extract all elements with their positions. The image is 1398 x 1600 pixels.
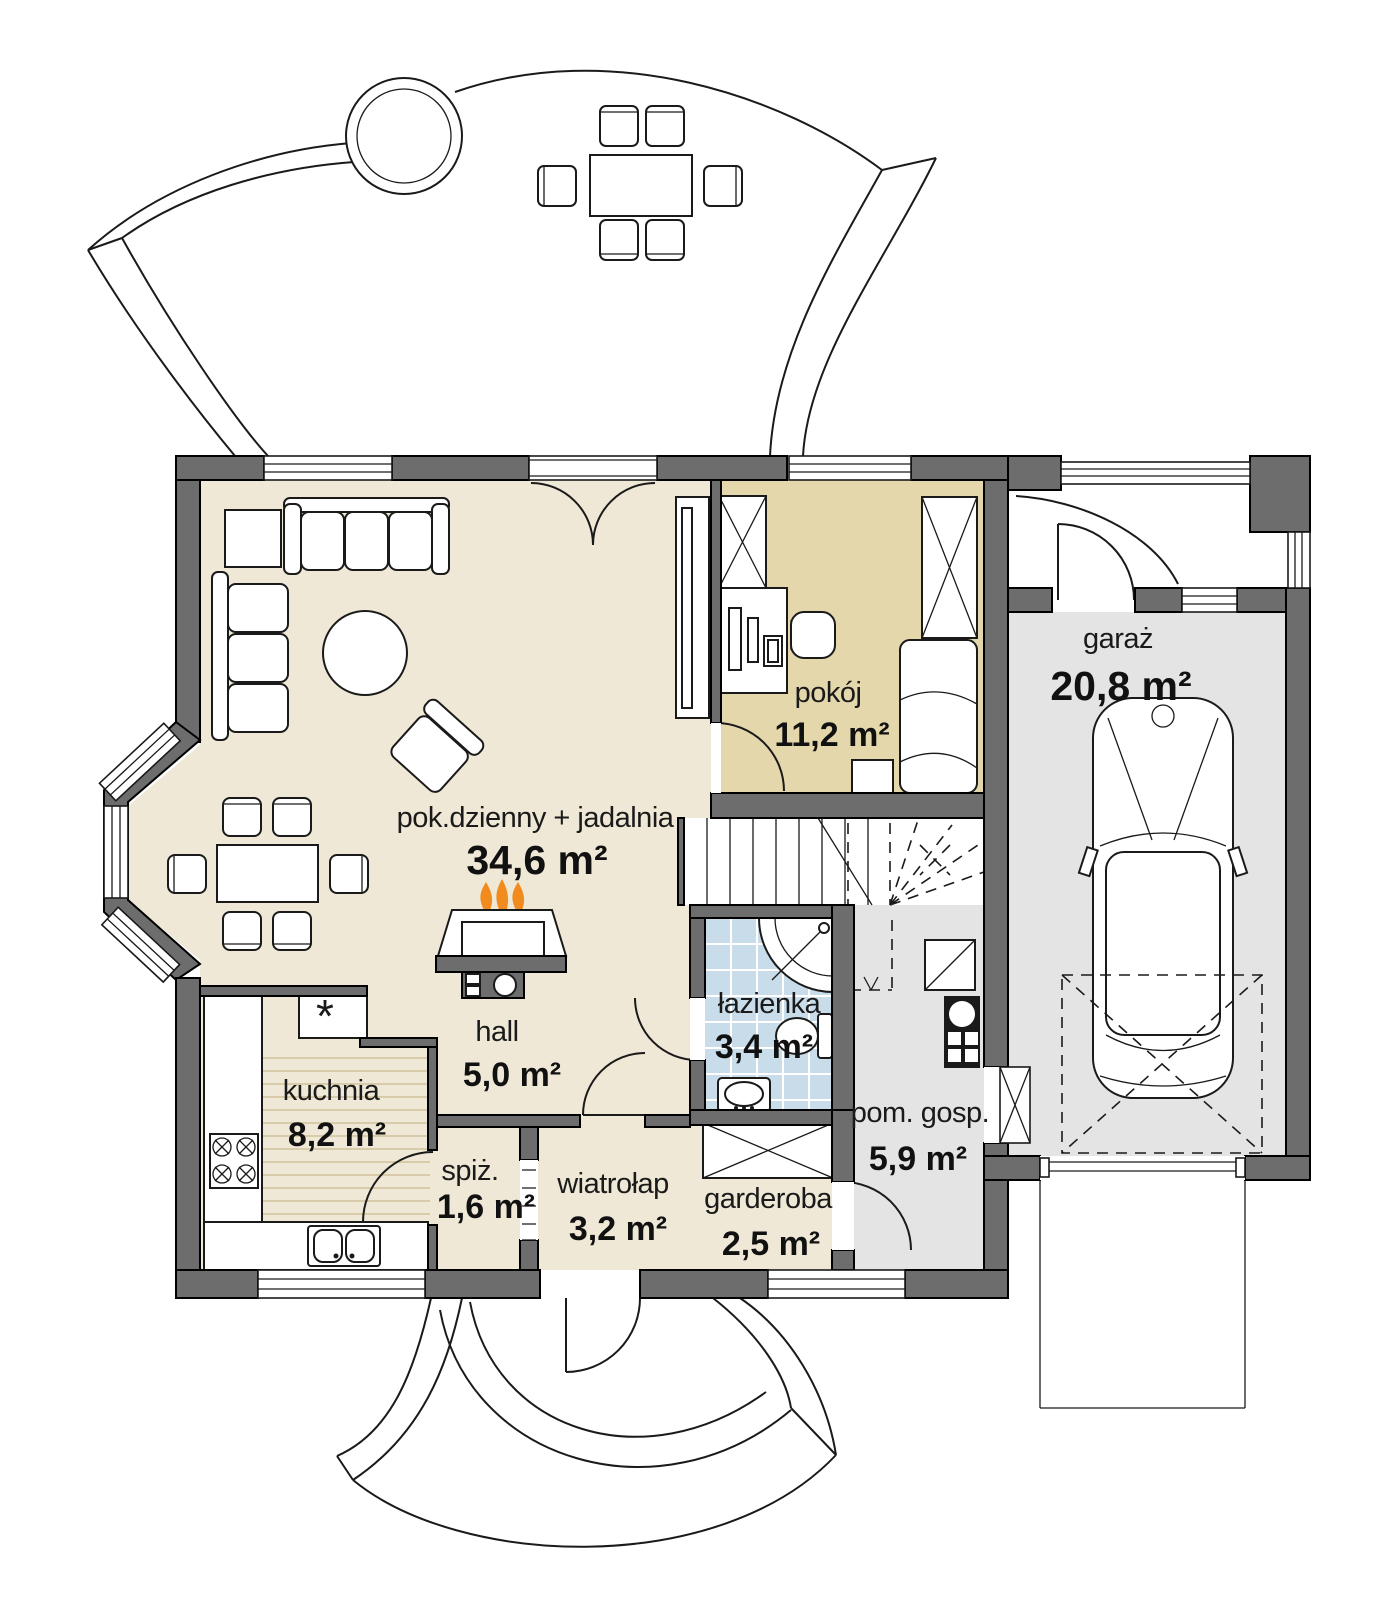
front-entrance-door — [566, 1298, 640, 1372]
porch-railing — [1061, 462, 1250, 484]
fireplace-flames-icon — [480, 879, 524, 912]
fridge-asterisk-icon: * — [316, 990, 334, 1042]
french-door-opening — [529, 456, 657, 480]
garderoba-wardrobe — [703, 1123, 833, 1178]
washbasin-icon — [718, 1078, 770, 1112]
sink-icon — [308, 1226, 380, 1266]
hall-label: hall — [475, 1016, 518, 1048]
desk-chair — [791, 612, 835, 658]
sofa-three-seat — [284, 498, 449, 574]
utility-area: 5,9 m² — [869, 1140, 967, 1178]
terrace-bottom — [337, 1298, 836, 1547]
vestibule-label: wiatrołap — [556, 1168, 669, 1200]
floor-plan: * — [0, 0, 1398, 1600]
porch-side-window — [1288, 532, 1310, 588]
living-room-label: pok.dzienny + jadalnia — [397, 802, 675, 834]
bed — [900, 640, 977, 793]
side-table — [225, 510, 281, 567]
kitchen-label: kuchnia — [283, 1075, 381, 1107]
bathroom-door-gap — [690, 998, 705, 1060]
window-bottom-garderoba — [768, 1270, 905, 1298]
hall-area: 5,0 m² — [463, 1056, 561, 1094]
boiler-icon — [944, 996, 980, 1068]
bathroom-label: łazienka — [718, 988, 822, 1020]
porch-garage-door — [1058, 524, 1134, 600]
porch-arc — [1016, 496, 1178, 584]
sofa-corner — [212, 572, 288, 740]
garage-area: 20,8 m² — [1050, 663, 1191, 709]
living-room-area: 34,6 m² — [466, 837, 607, 883]
pantry-area: 1,6 m² — [437, 1188, 535, 1226]
garderoba-door-gap — [832, 1182, 854, 1250]
tree-icon — [346, 78, 462, 194]
bathroom-area: 3,4 m² — [715, 1028, 813, 1066]
kitchen-area: 8,2 m² — [288, 1116, 386, 1154]
pantry-label: spiż. — [441, 1155, 498, 1187]
garage-door-leaf — [1000, 1067, 1030, 1143]
terrace-top — [88, 71, 936, 456]
window-top-left — [264, 456, 392, 480]
garage-label: garaż — [1083, 623, 1153, 655]
window-top-right — [789, 456, 911, 480]
driveway — [1040, 1180, 1245, 1408]
bay-window-left — [104, 806, 128, 898]
pokoj-area: 11,2 m² — [774, 716, 889, 754]
utility-label: pom. gosp. — [851, 1097, 989, 1129]
window-bottom-kitchen — [258, 1270, 425, 1298]
coffee-table — [323, 611, 407, 695]
terrace-table-set — [538, 106, 742, 260]
window-garage-top — [1182, 588, 1237, 612]
pokoj-door-gap — [711, 723, 721, 793]
pokoj-label: pokój — [795, 677, 862, 709]
car-icon — [1079, 698, 1247, 1098]
garderoba-label: garderoba — [704, 1183, 833, 1215]
vestibule-area: 3,2 m² — [569, 1210, 667, 1248]
stairs-floor — [684, 818, 984, 905]
garderoba-area: 2,5 m² — [722, 1225, 820, 1263]
garage-gate — [1040, 1156, 1245, 1180]
